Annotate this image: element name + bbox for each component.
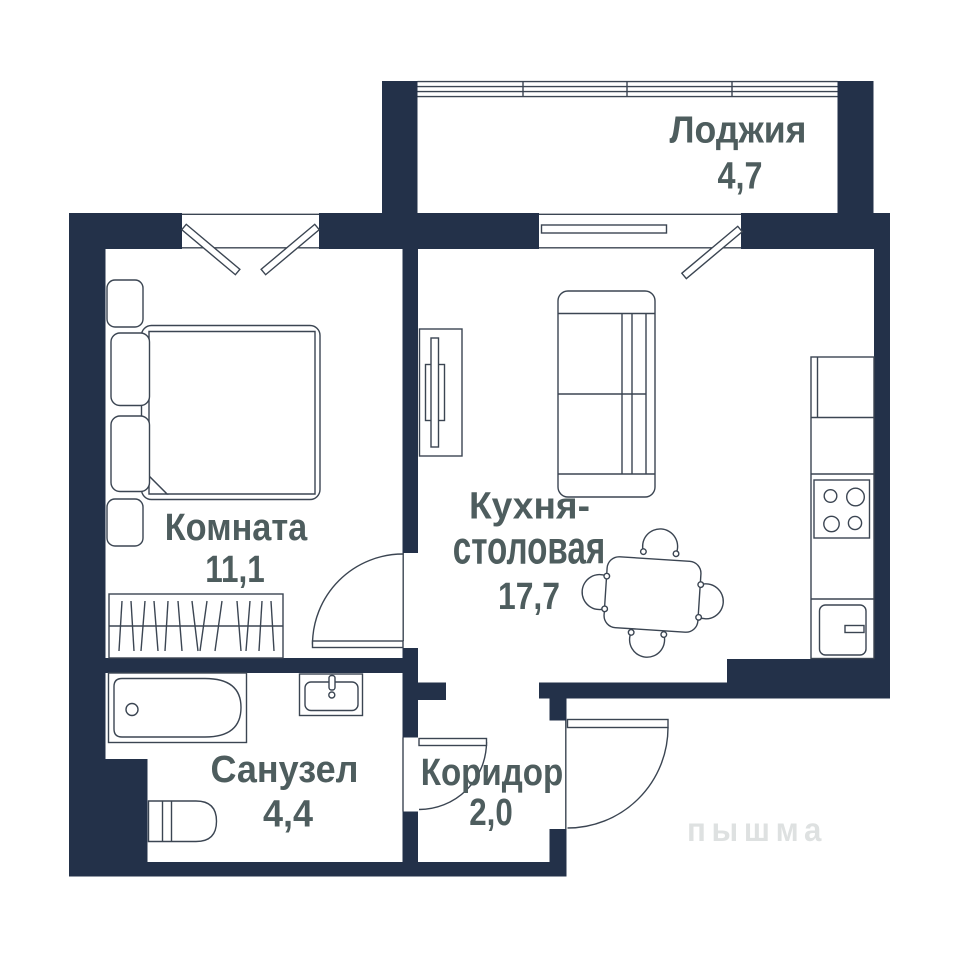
svg-text:4,4: 4,4 [263, 794, 313, 836]
svg-text:17,7: 17,7 [498, 576, 560, 618]
svg-text:столовая: столовая [453, 522, 606, 574]
svg-text:4,7: 4,7 [718, 156, 763, 198]
svg-text:11,1: 11,1 [205, 549, 265, 591]
svg-text:Комната: Комната [165, 507, 308, 549]
svg-text:Лоджия: Лоджия [670, 110, 807, 152]
svg-text:2,0: 2,0 [469, 792, 513, 834]
svg-text:пышма: пышма [687, 811, 827, 848]
svg-text:Коридор: Коридор [421, 752, 564, 794]
svg-text:Санузел: Санузел [211, 749, 359, 791]
